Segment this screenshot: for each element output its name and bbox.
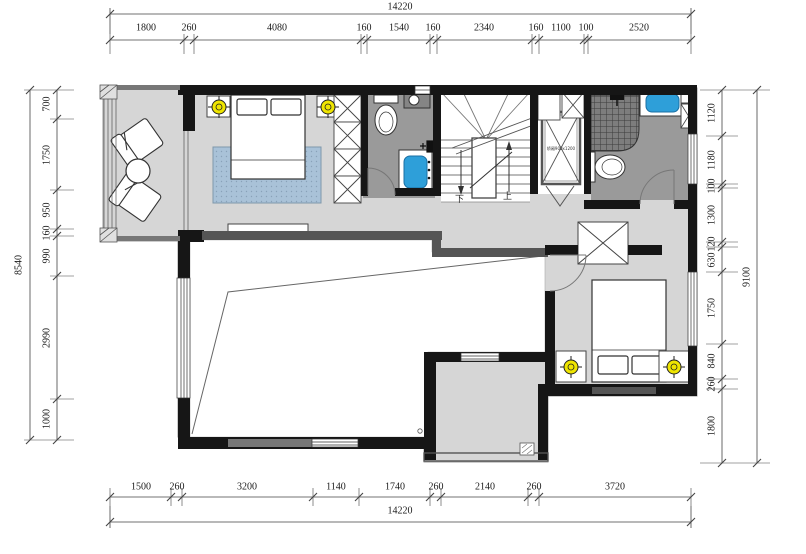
toilet xyxy=(374,95,398,135)
dim-label: 4080 xyxy=(267,23,287,34)
dim-label: 990 xyxy=(42,249,53,264)
dim-label: 260 xyxy=(527,482,542,493)
window xyxy=(688,134,697,184)
dim-label: 260 xyxy=(707,377,718,392)
dim-label: 160 xyxy=(357,23,372,34)
floor-drain xyxy=(520,443,534,455)
dim-label: 3720 xyxy=(605,482,625,493)
dim-label: 1000 xyxy=(42,409,53,429)
dim-label: 160 xyxy=(529,23,544,34)
dim-label: 1800 xyxy=(136,23,156,34)
window xyxy=(177,278,190,398)
dim-label: 1300 xyxy=(707,205,718,225)
window xyxy=(415,86,430,94)
dim-label: 630 xyxy=(707,253,718,268)
window xyxy=(688,272,697,346)
dim-label: 160 xyxy=(42,226,53,241)
dim-label: 2140 xyxy=(475,482,495,493)
dim-label: 1180 xyxy=(707,150,718,170)
elevator-label: 轿厢900x1200 xyxy=(547,145,576,151)
dim-label: 840 xyxy=(707,354,718,369)
dim-label: 1540 xyxy=(389,23,409,34)
dim-label: 120 xyxy=(707,237,718,252)
dim-label: 1740 xyxy=(385,482,405,493)
dim-label-top-overall: 14220 xyxy=(388,2,413,13)
floor-plan-drawing: 下 上 轿厢900x1200 xyxy=(0,0,806,554)
dim-label: 1140 xyxy=(326,482,346,493)
round-table xyxy=(126,159,150,183)
window xyxy=(312,439,358,447)
dim-label-right-overall: 9100 xyxy=(742,267,753,287)
wardrobe-closet xyxy=(334,95,361,203)
dim-label: 260 xyxy=(170,482,185,493)
dim-label: 1100 xyxy=(551,23,571,34)
dim-label: 1750 xyxy=(42,145,53,165)
wardrobe-closet xyxy=(562,92,584,118)
shower xyxy=(591,93,639,151)
dim-label: 950 xyxy=(42,203,53,218)
dim-label: 2990 xyxy=(42,328,53,348)
corner-sink xyxy=(404,93,430,108)
floor-plan-canvas: 下 上 轿厢900x1200 xyxy=(0,0,806,554)
dim-label-left-overall: 8540 xyxy=(14,255,25,275)
dim-label: 100 xyxy=(579,23,594,34)
bedroom2-bed xyxy=(592,280,666,382)
stairs-up-label: 上 xyxy=(503,191,512,202)
dim-label: 1750 xyxy=(707,298,718,318)
dim-label: 700 xyxy=(42,97,53,112)
dim-label-bottom-overall: 14220 xyxy=(388,506,413,517)
dim-label: 2520 xyxy=(629,23,649,34)
dim-label: 1800 xyxy=(707,416,718,436)
dim-label: 100 xyxy=(707,179,718,194)
stairs-down-label: 下 xyxy=(455,195,464,205)
dim-label: 1120 xyxy=(707,103,718,123)
dim-label: 3200 xyxy=(237,482,257,493)
dim-label: 260 xyxy=(182,23,197,34)
dim-label: 2340 xyxy=(474,23,494,34)
dim-label: 260 xyxy=(429,482,444,493)
master-bed xyxy=(231,95,305,179)
dim-label: 1500 xyxy=(131,482,151,493)
vanity-sink xyxy=(399,150,432,194)
window xyxy=(461,353,499,361)
dim-label: 160 xyxy=(426,23,441,34)
